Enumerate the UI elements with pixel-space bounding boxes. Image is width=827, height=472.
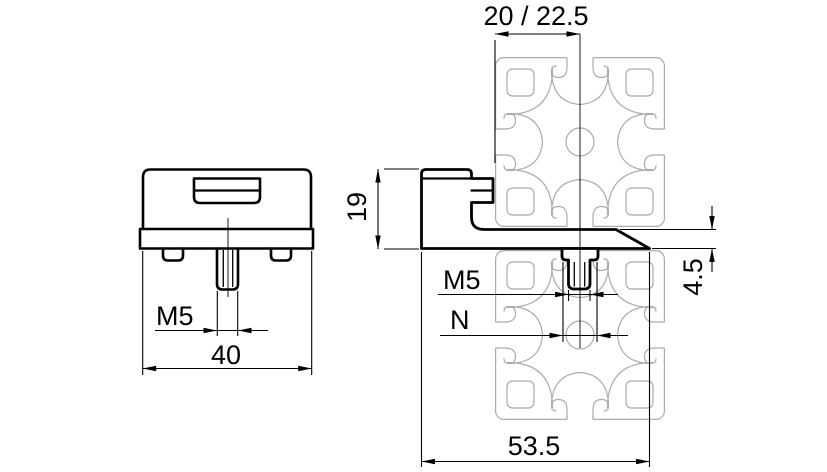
dim-label-front-width: 40 [211,340,241,370]
left-nub-front [163,249,183,261]
technical-drawing-canvas: M5 40 20 / 22.5 19 4.5 [0,0,827,472]
dim-label-depth: 53.5 [508,431,561,461]
drawing-svg: M5 40 20 / 22.5 19 4.5 [0,0,827,472]
dim-slot-offset: 20 / 22.5 [483,1,588,163]
right-nub-front [271,249,291,261]
bracket-side-outline [422,170,650,249]
dim-label-height: 19 [342,192,372,222]
dim-height: 19 [342,169,419,249]
dim-label-plate-thickness: 4.5 [678,258,708,296]
stud-front [217,249,238,290]
centerlines [228,34,580,348]
front-view-bracket [140,170,313,290]
dim-label-slot-offset: 20 / 22.5 [483,1,588,31]
dim-label-front-thread: M5 [156,301,194,331]
dim-front-thread: M5 [155,291,268,336]
dim-label-side-thread: M5 [443,265,481,295]
base-flange-front [140,229,313,249]
dim-label-slot-opening: N [450,305,470,335]
